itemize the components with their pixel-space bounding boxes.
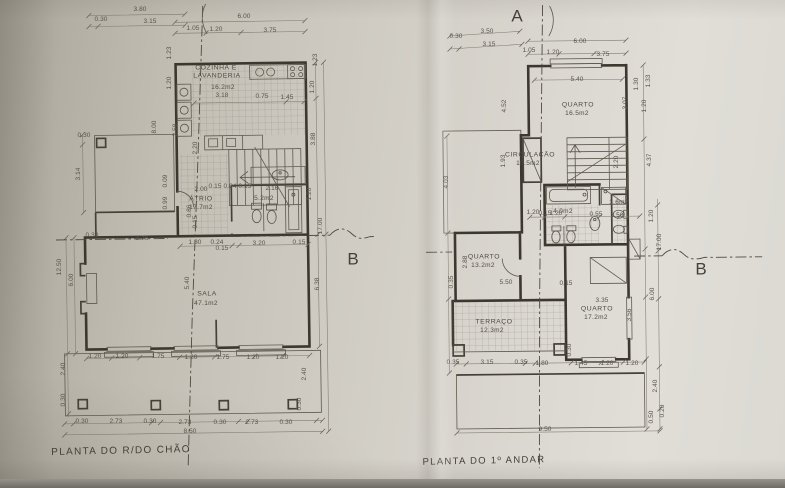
dimension-label: 2.88 (463, 255, 470, 268)
dimension-label: 3.76 (135, 236, 148, 243)
room-area-label: 13.2m2 (471, 263, 495, 270)
dimension-label: 6.00 (69, 273, 76, 286)
dimension-label: 0.50 (649, 410, 656, 423)
dimension-label: 3.88 (311, 132, 318, 145)
dimension-label: 0.15 (215, 246, 228, 253)
dimension-label: 1.20 (549, 211, 562, 218)
room-label: QUARTO (581, 307, 613, 314)
room-label: TERRAÇO (475, 320, 512, 327)
dimension-label: 5.40 (570, 77, 583, 84)
table-edge (0, 479, 785, 488)
dimension-label: 2.73 (245, 420, 258, 427)
dimension-label: 9.50 (538, 427, 551, 434)
dimension-label: 2.40 (653, 379, 660, 392)
dimension-label: 1.20 (88, 354, 101, 361)
dimension-label: 2.00 (194, 187, 207, 194)
dimension-label: 2.40 (61, 362, 68, 375)
dimension-label: 1.33 (646, 74, 653, 87)
dimension-label: 12.50 (57, 259, 64, 276)
dimension-label: 0.55 (589, 212, 602, 219)
dimension-label: 3.58 (173, 123, 180, 136)
dimension-label: 0.30 (279, 420, 292, 427)
dimension-label: 3.56 (627, 308, 634, 321)
dimension-label: 1.45 (574, 361, 587, 368)
room-area-label: 5.2m2 (254, 196, 274, 203)
dimension-label: 1.23 (167, 46, 174, 59)
dimension-label: 1.75 (151, 354, 164, 361)
dimension-label: 0.09 (163, 174, 170, 187)
room-area-label: 10.5m2 (516, 161, 540, 168)
dimension-label: 0.30 (213, 420, 226, 427)
dimension-label: 1.20 (167, 76, 174, 89)
dimension-label: 3.80 (133, 7, 146, 14)
room-area-label: 16.2m2 (211, 85, 235, 92)
dimension-label: 2.73 (178, 420, 191, 427)
dimension-label: 0.35 (514, 360, 527, 367)
dimension-label: 6.00 (650, 287, 657, 300)
room-area-label: 12.3m2 (480, 328, 504, 335)
room-label: LAVANDERIA (193, 74, 241, 81)
dimension-label: 1.30 (634, 77, 641, 90)
dimension-label: 1.05 (522, 48, 535, 55)
room-label: COZINHA E (195, 66, 237, 73)
dimension-label: 3.50 (480, 29, 493, 36)
dimension-label: 6.00 (573, 39, 586, 46)
section-marker-label: A (511, 8, 522, 25)
dimension-label: 1.20 (600, 361, 613, 368)
dimension-label: 0.30 (449, 34, 462, 41)
room-label: QUARTO (468, 255, 500, 262)
dimension-label: 1.50 (610, 213, 623, 220)
dimension-label: 2.20 (614, 155, 621, 168)
dimension-label: 0.30 (85, 233, 98, 240)
room-area-label: 16.5m2 (565, 111, 589, 118)
dimension-label: 4.37 (647, 153, 654, 166)
dimension-label: 1.20 (649, 209, 656, 222)
dimension-label: 6.00 (237, 14, 250, 21)
dimension-label: 5.50 (499, 280, 512, 287)
dimension-label: 2.16 (265, 186, 278, 193)
room-label: SALA (197, 292, 217, 299)
dimension-label: 0.15 0.84 0.15 (209, 184, 252, 191)
dimension-label: 0.30 (75, 419, 88, 426)
dimension-label: 1.20 (275, 355, 288, 362)
dimension-label: 3.15 (480, 360, 493, 367)
dimension-label: 0.15 (559, 281, 572, 288)
dimension-label: 4.03 (444, 175, 451, 188)
dimension-label: 1.45 (280, 95, 293, 102)
dimension-label: 17.00 (657, 234, 664, 251)
dimension-label: 3.14 (76, 167, 83, 180)
dimension-label: 1.20 (310, 80, 317, 93)
dimension-label: 1.93 (501, 154, 508, 167)
dimension-label: 1.05 (186, 26, 199, 33)
dimension-label: 1.20 (546, 50, 559, 57)
dimension-label: 1.20 (625, 361, 638, 368)
dimension-label: 0.20 (660, 404, 667, 417)
dimension-label: 1.75 (216, 355, 229, 362)
room-label: QUARTO (562, 103, 594, 110)
dimension-label: 2.20 (193, 141, 200, 154)
dimension-label: 0.35 (449, 275, 456, 288)
dimension-label: 1.20 (642, 99, 649, 112)
dimension-label: 0.30 (143, 419, 156, 426)
dimension-label: 0.30 (94, 17, 107, 24)
dimension-label: 0.30 (567, 343, 574, 356)
section-marker-label: B (695, 261, 706, 278)
dimension-label: 2.40 (302, 367, 309, 380)
dimension-label: 0.99 (163, 196, 170, 209)
dimension-label: 3.15 (482, 42, 495, 49)
room-label: CIRCULAÇÃO (505, 153, 555, 160)
first-floor-plan (424, 3, 765, 469)
dimension-label: 3.20 (252, 241, 265, 248)
dimension-label: 0.75 (255, 94, 268, 101)
dimension-label: 0.30 (61, 393, 68, 406)
dimension-label: 17.00 (318, 218, 325, 235)
room-area-label: 47.1m2 (194, 301, 218, 308)
dimension-label: 1.20 (307, 187, 314, 200)
dimension-label: 1.20 (184, 355, 197, 362)
dimension-label: 0.30 (297, 397, 304, 410)
photo-of-architectural-plans: 3.800.303.156.001.051.203.751.231.208.00… (0, 0, 785, 488)
dimension-label: 1.23 (313, 53, 320, 66)
dimension-label: 3.07 (623, 96, 630, 109)
dimension-label: 3.18 (215, 93, 228, 100)
dimension-label: 0.15 (292, 240, 305, 247)
dimension-label: 1.80 (535, 361, 548, 368)
dimension-label: 2.73 (109, 419, 122, 426)
dimension-label: 3.75 (263, 28, 276, 35)
dimension-label: 3.35 (595, 298, 608, 305)
room-area-label: 1.6m2 (609, 200, 629, 207)
dimension-label: 5.40 (185, 276, 192, 289)
dimension-label: 3.15 (143, 19, 156, 26)
dimension-label: 1.20 (209, 27, 222, 34)
dimension-label: 1.80 (188, 240, 201, 247)
dimension-label: 3.75 (596, 52, 609, 59)
dimension-label: 1.20 (246, 355, 259, 362)
section-marker-label: B (347, 251, 358, 268)
room-label: ÁTRIO (189, 197, 213, 204)
dimension-label: 6.38 (315, 277, 322, 290)
dimension-label: 0.15 (193, 215, 200, 228)
dimension-label: 4.52 (502, 99, 509, 112)
dimension-label: 1.20 (115, 354, 128, 361)
floor-plans-drawing (0, 0, 785, 488)
dimension-label: 8.50 (183, 429, 196, 436)
dimension-label: 8.00 (152, 120, 159, 133)
dimension-label: 0.30 (77, 133, 90, 140)
dimension-label: 0.35 (446, 360, 459, 367)
room-area-label: 17.2m2 (584, 315, 608, 322)
